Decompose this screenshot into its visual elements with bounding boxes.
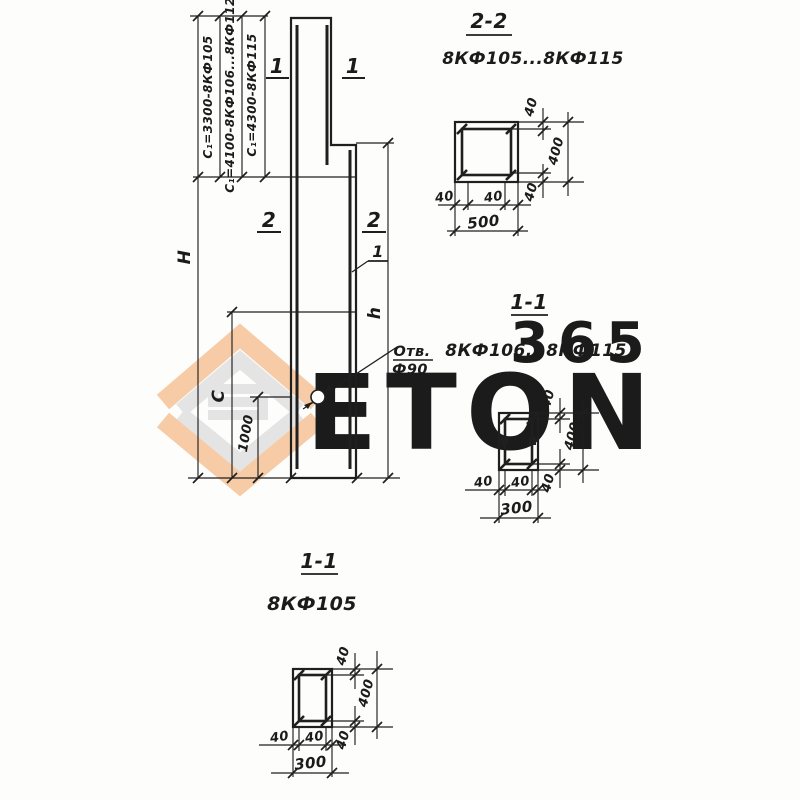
section-1-1-right-width-total: 300 [499, 497, 533, 518]
section-1-1-bottom: 1-1 8КФ105 40 400 40 40 40 300 [259, 549, 393, 778]
cut-2-right-mark: 2 [367, 208, 381, 232]
c1-label-8kf115: С₁=4300-8КФ115 [245, 33, 259, 156]
hole-note-line2: Ф90 [392, 362, 428, 378]
section-1-1-bottom-stirrup [299, 675, 326, 721]
section-2-2-stirrup [462, 129, 511, 175]
section-1-1-right-mid-bar-right [529, 437, 536, 445]
section-2-2-range: 8КФ105...8КФ115 [442, 49, 624, 69]
section-2-2-width-total: 500 [466, 211, 500, 232]
section-1-1-right-range: 8КФ106...8КФ115 [445, 341, 627, 361]
section-1-1-bottom-cover-right: 40 [303, 729, 325, 747]
section-1-1-bottom-cover-top: 40 [334, 645, 354, 668]
section-1-1-bottom-title: 1-1 [300, 549, 337, 573]
c1-label-8kf106-112: С₁=4100-8КФ106...8КФ112 [223, 0, 237, 193]
section-1-1-right-cover-bottom: 40 [539, 472, 559, 495]
cut-2-left-mark: 2 [262, 208, 276, 232]
hole-circle [311, 390, 325, 404]
c1-label-8kf105: С₁=3300-8КФ105 [201, 35, 215, 158]
section-2-2-rebar-corner-marks [457, 124, 516, 180]
h-dimension-label: h [365, 307, 385, 320]
section-1-1-bottom-height: 400 [355, 677, 377, 709]
section-1-1-right-mid-bar-left [501, 437, 508, 445]
section-1-1-bottom-cover-bottom: 40 [334, 729, 354, 752]
section-1-1-right-cover-right: 40 [509, 474, 531, 492]
section-2-2: 2-2 8КФ105...8КФ115 40 400 40 40 40 500 [433, 9, 624, 236]
column-drawing-svg: ETON 365 Отв. Ф90 С₁=3300-8КФ105 С₁=4100… [0, 0, 800, 800]
rebar-mark-leader [352, 261, 368, 272]
total-height-label: Н [175, 250, 195, 265]
section-2-2-cover-bottom: 40 [522, 181, 542, 204]
rebar-position-mark: 1 [372, 242, 384, 261]
section-1-1-bottom-cover-left: 40 [268, 729, 290, 747]
cut-1-right-mark: 1 [346, 54, 360, 78]
watermark: ETON 365 [163, 311, 659, 484]
section-2-2-cover-right: 40 [482, 189, 504, 207]
section-cut-marks: 1 1 2 2 1 [257, 54, 388, 272]
section-1-1-right-title: 1-1 [510, 290, 547, 314]
hole-note-line1: Отв. [393, 344, 430, 360]
section-1-1-bottom-range: 8КФ105 [267, 593, 357, 615]
section-2-2-cover-top: 40 [522, 96, 542, 119]
c-dimension-label: С [209, 389, 229, 402]
section-1-1-right-cover-left: 40 [472, 474, 494, 492]
section-2-2-title: 2-2 [470, 9, 507, 33]
cut-1-left-mark: 1 [270, 54, 284, 78]
section-1-1-bottom-width-total: 300 [293, 752, 327, 773]
section-2-2-cover-left: 40 [433, 189, 455, 207]
drawing-sheet: ETON 365 Отв. Ф90 С₁=3300-8КФ105 С₁=4100… [0, 0, 800, 800]
section-2-2-height: 400 [545, 135, 567, 167]
